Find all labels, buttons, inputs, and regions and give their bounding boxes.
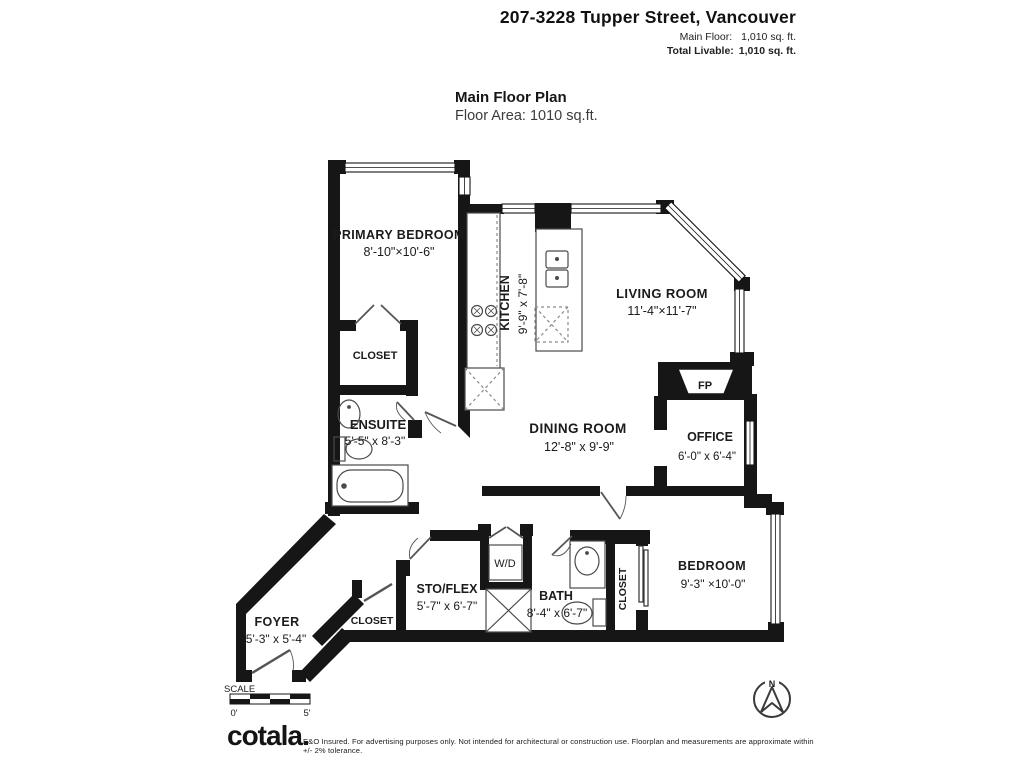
room-dims-bath: 8'-4" x 6'-7" (527, 606, 587, 620)
primary-bedroom-door (425, 412, 456, 426)
scale-bar: SCALE 0' 5' (224, 684, 311, 719)
laundry-label: W/D (494, 558, 515, 570)
room-dims-foyer: 5'-3" x 5'-4" (246, 632, 306, 646)
scale-start: 0' (230, 708, 237, 719)
fireplace-label: FP (698, 380, 712, 392)
closet-door-right (381, 305, 401, 324)
room-label-ensuite: ENSUITE (350, 417, 407, 432)
kitchen-island (535, 229, 582, 351)
room-dims-kitchen: 9'-9" x 7'-8" (516, 274, 530, 334)
bathtub-icon (332, 465, 408, 506)
wd-bifold-doors (489, 527, 523, 538)
room-dims-primary-bedroom: 8'-10"×10'-6" (364, 245, 435, 259)
room-dims-sto-flex: 5'-7" x 6'-7" (417, 599, 477, 613)
bath-door (552, 536, 572, 555)
brand-logo: cotala (227, 720, 308, 752)
disclaimer-text: E&O Insured. For advertising purposes on… (303, 737, 823, 755)
room-label-primary-bedroom: PRIMARY BEDROOM (333, 228, 465, 242)
room-label-office: OFFICE (687, 430, 733, 444)
room-dims-office: 6'-0" x 6'-4" (678, 451, 736, 463)
room-label-living-room: LIVING ROOM (616, 286, 708, 301)
room-label-kitchen: KITCHEN (498, 275, 512, 331)
room-label-bath: BATH (539, 589, 573, 603)
room-dims-ensuite: 5'-5" x 8'-3" (345, 434, 405, 448)
room-label-foyer: FOYER (254, 615, 299, 629)
entry-door (252, 650, 290, 673)
room-dims-dining-room: 12'-8" x 9'-9" (544, 440, 614, 454)
brand-logo-text: cotala (227, 720, 302, 751)
room-label-bedroom: BEDROOM (678, 559, 746, 573)
bath-vanity-icon (570, 541, 605, 588)
north-compass-icon: N (754, 677, 790, 717)
hallway-door (601, 492, 620, 519)
scale-end: 5' (303, 708, 310, 719)
compass-north-label: N (769, 679, 776, 689)
sto-flex-door (410, 537, 431, 559)
foyer-closet-door (364, 584, 392, 601)
room-label-dining-room: DINING ROOM (529, 421, 626, 436)
room-dims-bedroom: 9'-3" ×10'-0" (681, 577, 746, 591)
sliding-doors (639, 546, 648, 606)
room-dims-living-room: 11'-4"×11'-7" (627, 304, 696, 318)
room-label-sto-flex: STO/FLEX (417, 582, 479, 596)
room-label-closet-bedroom: CLOSET (617, 567, 629, 610)
room-label-closet-primary: CLOSET (353, 350, 398, 362)
appliance-icon (465, 368, 504, 410)
shower-icon (486, 589, 531, 632)
scale-label: SCALE (224, 684, 255, 695)
room-label-closet-foyer: CLOSET (351, 615, 394, 627)
floor-plan: PRIMARY BEDROOM 8'-10"×10'-6" CLOSET ENS… (0, 0, 1024, 768)
closet-door-left (355, 305, 374, 324)
